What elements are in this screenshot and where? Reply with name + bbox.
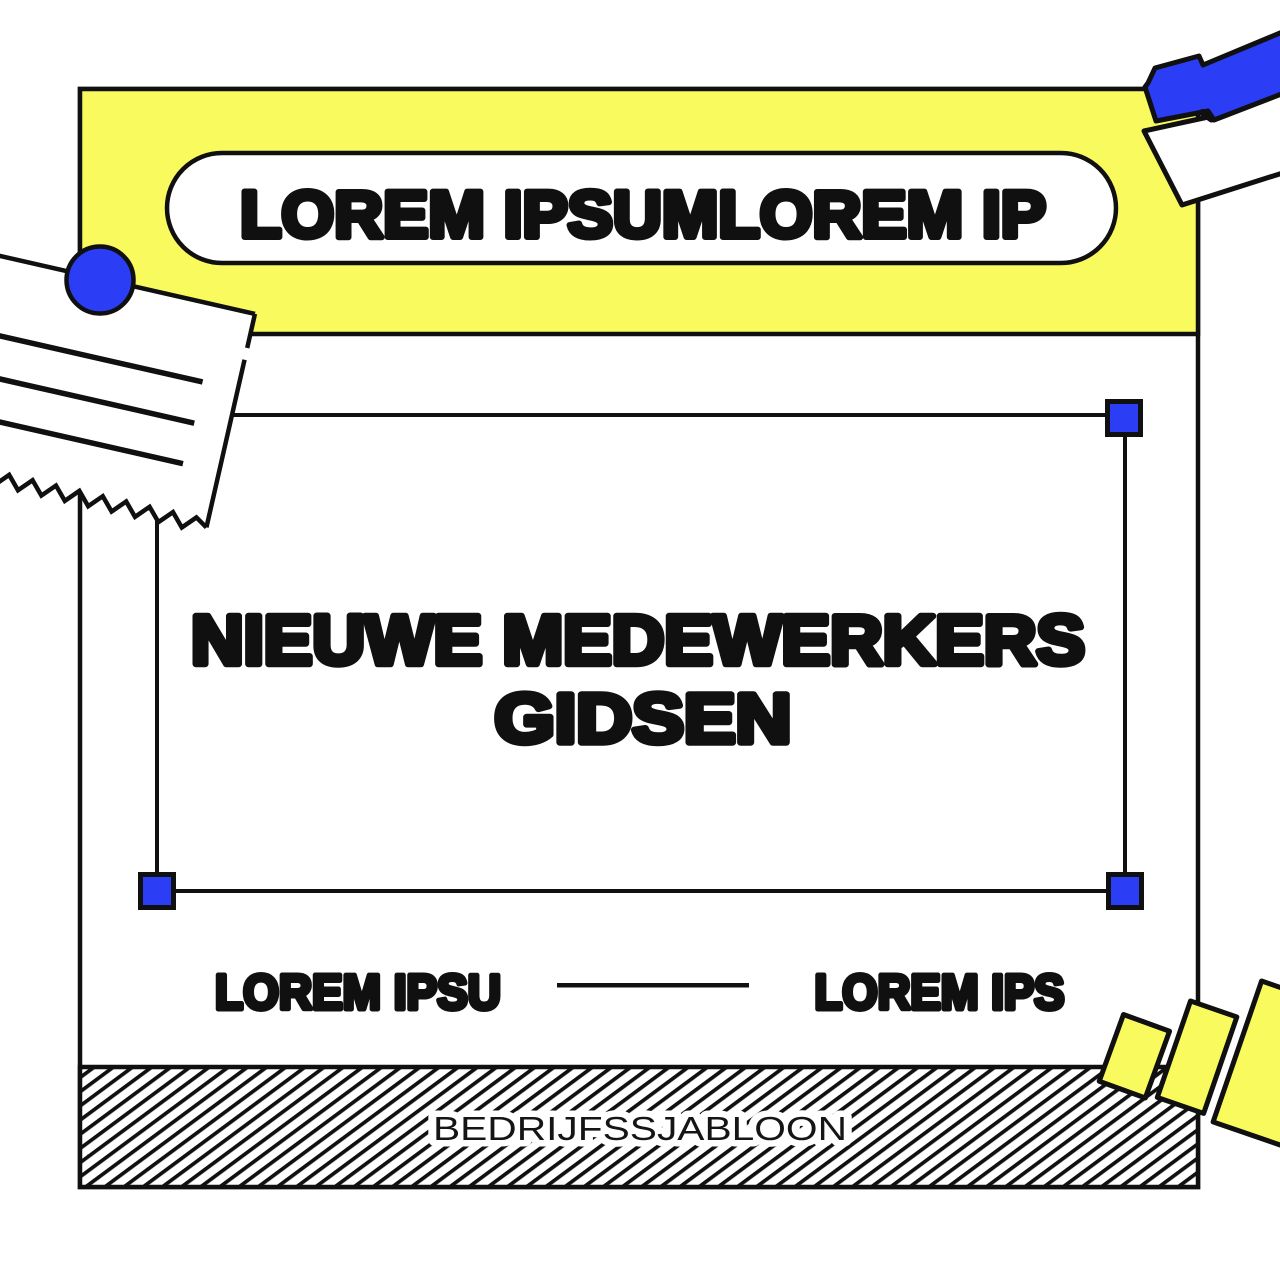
svg-text:LOREM IPSU: LOREM IPSU (215, 966, 501, 1020)
svg-text:GIDSEN: GIDSEN (495, 680, 792, 758)
svg-text:NIEUWE MEDEWERKERS: NIEUWE MEDEWERKERS (191, 601, 1085, 679)
svg-text:BEDRIJFSSJABLOON: BEDRIJFSSJABLOON (433, 1110, 847, 1147)
svg-text:LOREM IPSUMLOREM IP: LOREM IPSUMLOREM IP (240, 177, 1046, 251)
svg-text:LOREM IPS: LOREM IPS (815, 966, 1065, 1020)
